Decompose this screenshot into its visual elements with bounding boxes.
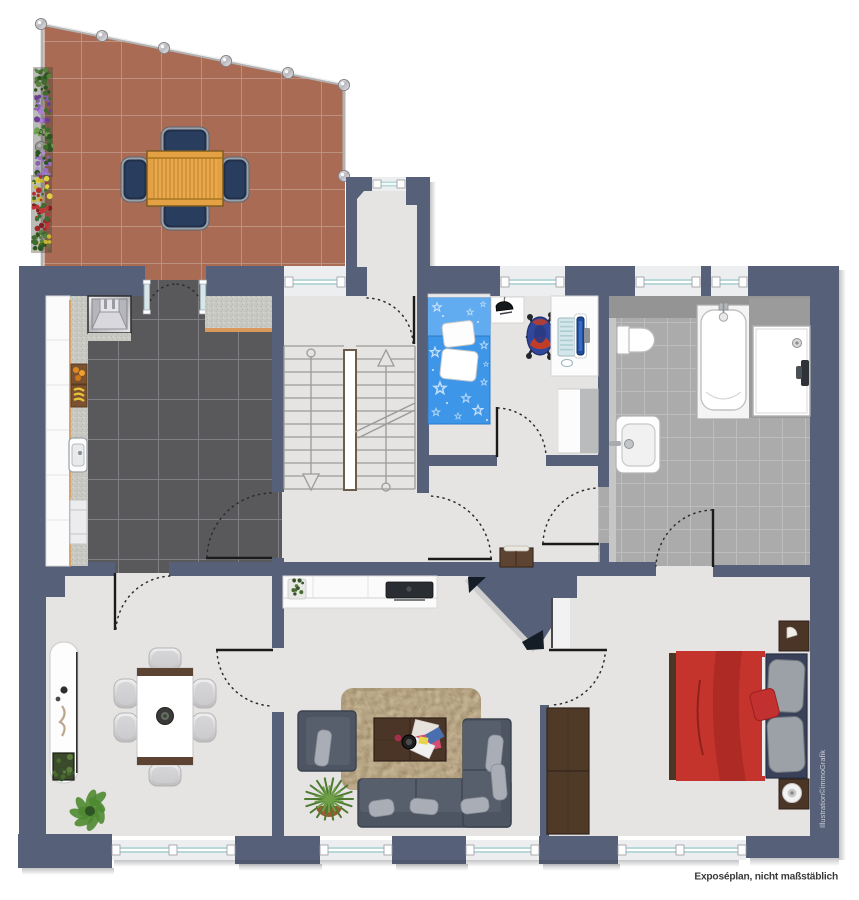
svg-text:Exposéplan, nicht maßstäblich: Exposéplan, nicht maßstäblich <box>694 872 838 883</box>
svg-text:Illustration©immoGrafik: Illustration©immoGrafik <box>818 750 827 828</box>
